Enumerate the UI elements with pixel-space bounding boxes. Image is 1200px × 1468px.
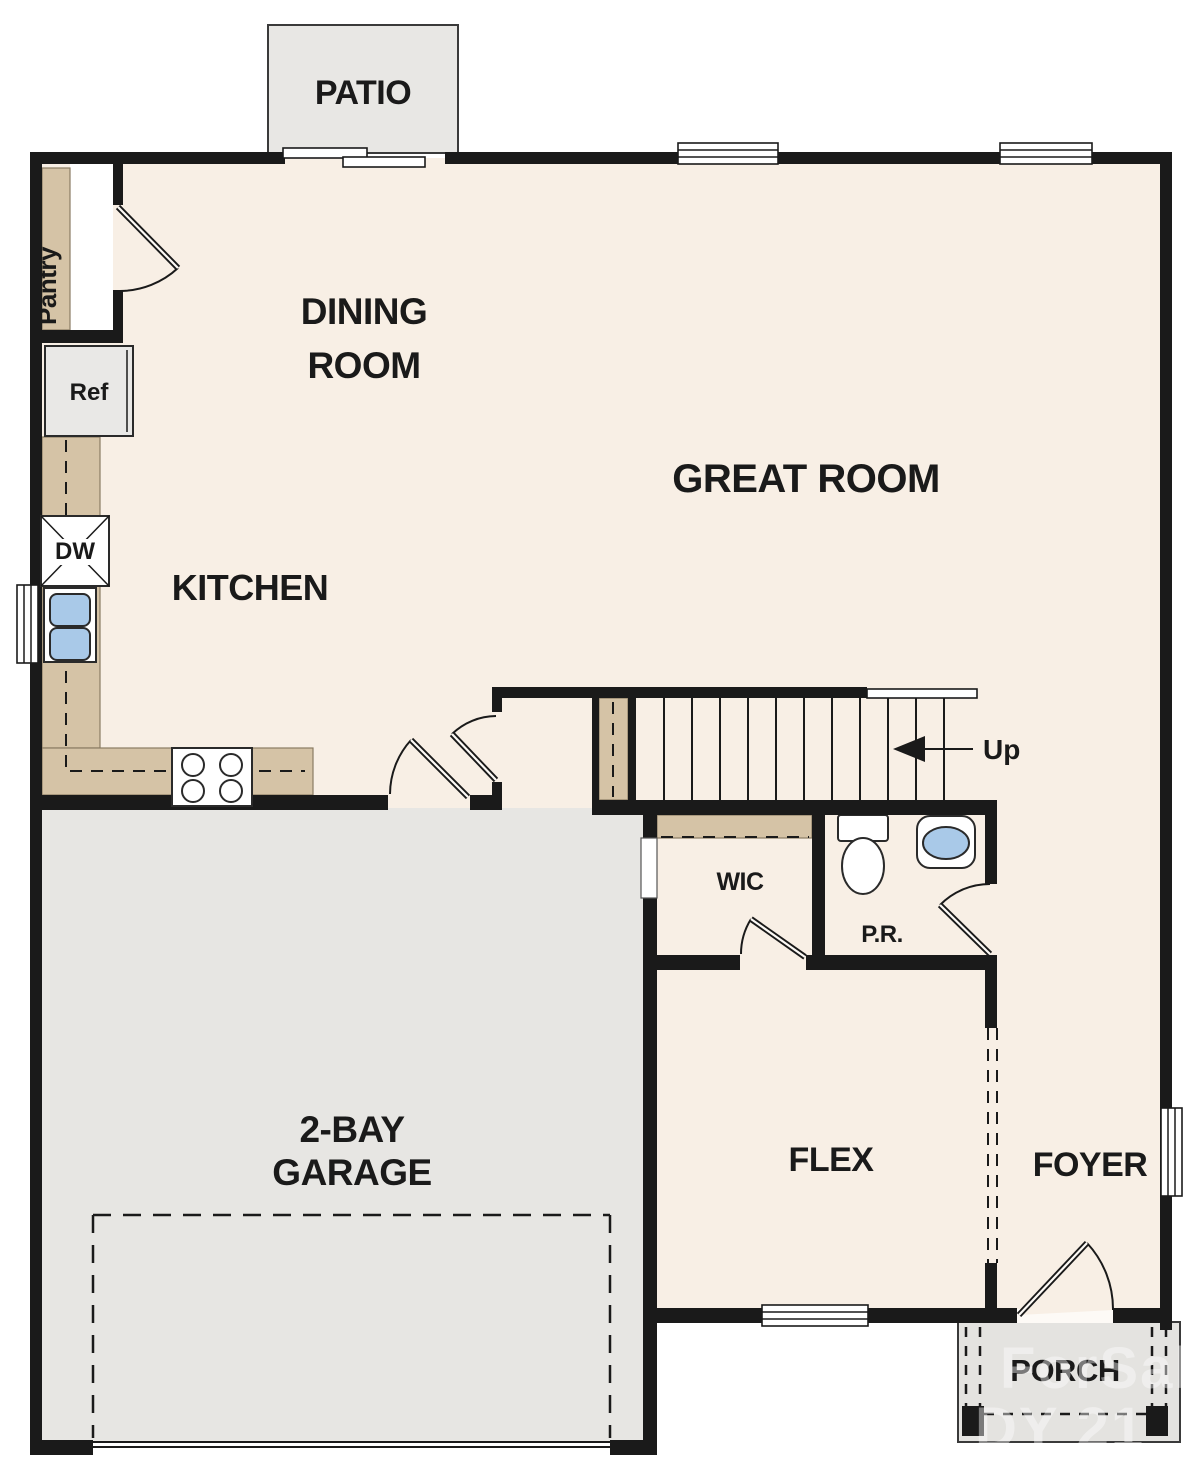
dining-room-label-line2: ROOM (307, 345, 420, 386)
garage-bottom-wall-left (30, 1440, 93, 1455)
dining-room-label-line1: DINING (301, 291, 428, 332)
floor-plan: PATIO DINING ROOM GREAT ROOM KITCHEN Pan… (0, 0, 1200, 1468)
flex-label: FLEX (789, 1141, 875, 1179)
understair-wall-right (628, 698, 636, 800)
stair-stringer (867, 689, 977, 698)
great-room-window-2 (1000, 143, 1092, 164)
garage-label-line1: 2-BAY (299, 1109, 405, 1150)
toilet-bowl (842, 838, 884, 894)
garage-label-line2: GARAGE (272, 1152, 431, 1193)
hall-stub-lower (492, 782, 502, 797)
patio-label: PATIO (315, 74, 411, 112)
top-wall-left (30, 152, 285, 164)
great-room-label: GREAT ROOM (672, 457, 940, 501)
porch-post-right (1146, 1406, 1168, 1436)
kitchen-garage-wall-right (470, 795, 502, 810)
wic-bottom-wall-left (643, 955, 740, 970)
wic-powder-divider-wall (812, 815, 825, 955)
great-room-window-1 (678, 143, 778, 164)
pantry-label: Pantry (32, 246, 62, 325)
greatroom-stair-wall (502, 687, 867, 698)
hall-stub-upper (492, 687, 502, 712)
powder-sink-basin (923, 827, 969, 859)
kitchen-sink (44, 588, 96, 662)
understair-wall-left (592, 698, 599, 800)
pantry-bottom-wall (42, 330, 123, 343)
watermark-line2: DY 21 (975, 1396, 1145, 1461)
dishwasher-label: DW (55, 538, 95, 565)
watermark-line1: ForSale (1000, 1336, 1200, 1401)
wic-shelf (657, 815, 812, 838)
foyer-label: FOYER (1033, 1146, 1148, 1184)
garage-bottom-wall-right (610, 1440, 657, 1455)
powder-right-wall (985, 800, 997, 884)
kitchen-label: KITCHEN (172, 567, 329, 608)
wic-label: WIC (716, 868, 764, 896)
powder-room-label: P.R. (861, 921, 903, 948)
kitchen-window (17, 585, 38, 663)
foyer-window (1161, 1108, 1182, 1196)
flex-window (762, 1305, 868, 1326)
refrigerator-label: Ref (70, 379, 110, 406)
wic-bottom-wall-right (806, 955, 997, 970)
stairs-up-label: Up (983, 734, 1020, 765)
stove (172, 748, 252, 806)
flex-foyer-stub-lower (985, 1263, 997, 1308)
pantry-wall-stub-top (113, 164, 123, 205)
flex-foyer-stub-upper (985, 970, 997, 1028)
garage-wall-recess (641, 838, 657, 898)
pantry-floor (70, 164, 113, 330)
foyer-bottom-wall (1113, 1308, 1172, 1323)
